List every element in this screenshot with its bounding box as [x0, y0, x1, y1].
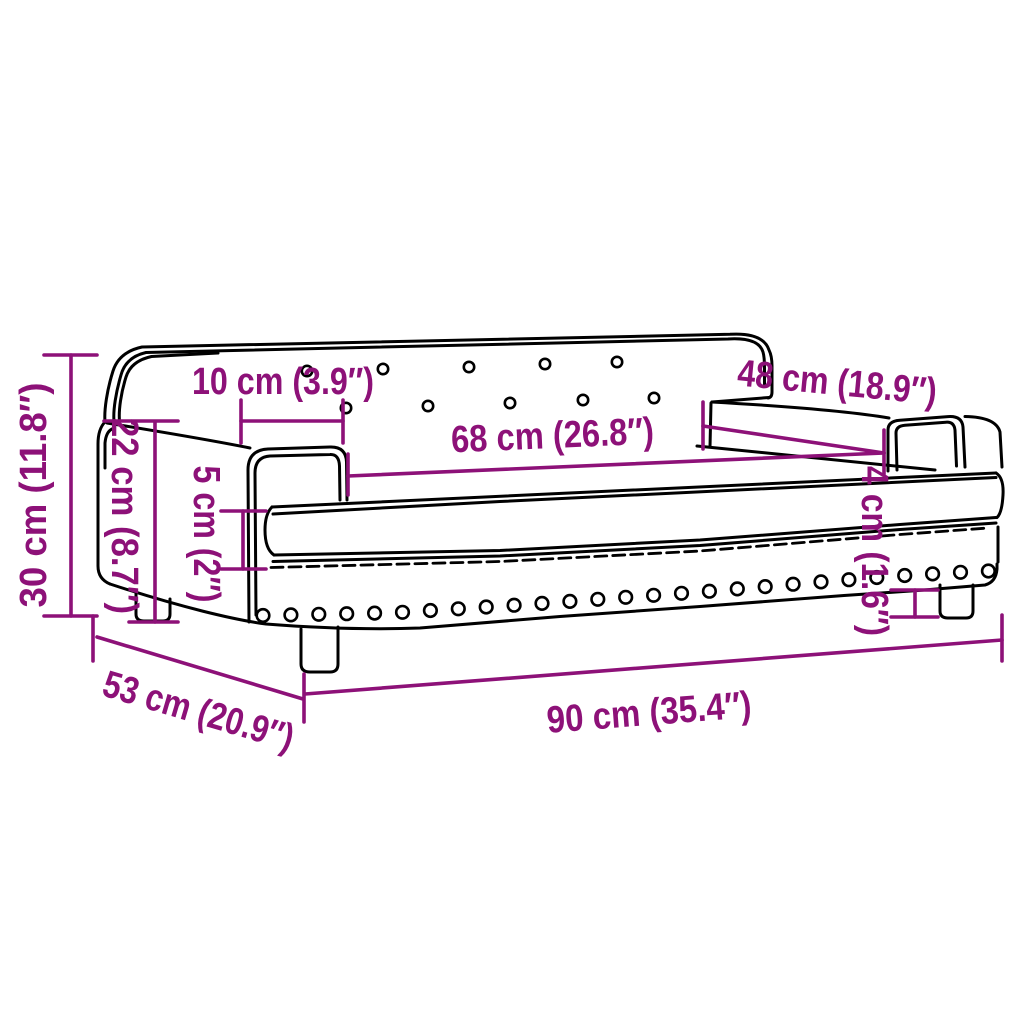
svg-text:4 cm (1.6″): 4 cm (1.6″): [853, 466, 895, 636]
svg-text:90 cm (35.4″): 90 cm (35.4″): [545, 684, 753, 742]
svg-text:68 cm (26.8″): 68 cm (26.8″): [450, 411, 655, 462]
svg-text:10 cm (3.9″): 10 cm (3.9″): [192, 361, 374, 403]
svg-text:30 cm (11.8″): 30 cm (11.8″): [13, 383, 55, 608]
svg-text:22 cm (8.7″): 22 cm (8.7″): [103, 418, 145, 614]
svg-text:5 cm (2″): 5 cm (2″): [185, 466, 227, 603]
svg-text:53 cm (20.9″): 53 cm (20.9″): [98, 663, 299, 759]
